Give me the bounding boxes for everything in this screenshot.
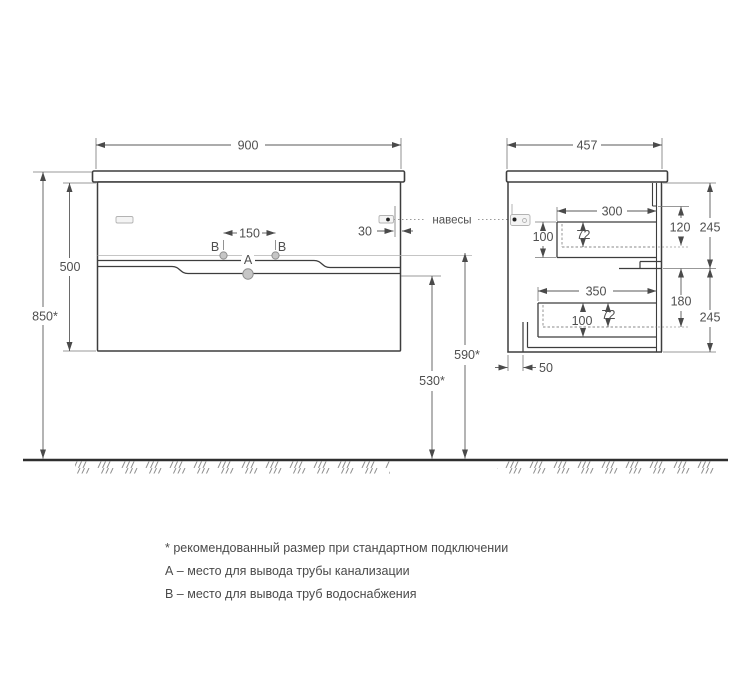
ground [23,460,728,474]
dim-530-label: 530* [419,374,445,388]
vanity-drawing: B B A 150 30 900 850* [0,0,750,500]
dim-100-bottom-label: 100 [572,314,593,328]
ground-hatch-left [75,462,390,474]
dim-72-bottom-label: 72 [602,308,616,322]
top-drawer-outline [557,222,657,258]
side-extension-lines [658,183,716,352]
dim-180-label: 180 [671,295,692,309]
label-a: A [244,253,253,267]
dim-150-label: 150 [239,227,260,241]
dim-100-top-label: 100 [533,230,554,244]
dim-50-label: 50 [539,361,553,375]
point-a [243,269,253,279]
dim-300-label: 300 [602,205,623,219]
bottom-drawer-dashed [543,305,657,327]
dim-72-top-label: 72 [577,228,591,242]
dim-590-label: 590* [454,348,480,362]
side-countertop [507,171,668,182]
dim-350-label: 350 [586,285,607,299]
front-countertop [93,171,405,182]
legend-note-a: А – место для вывода трубы канализации [165,560,508,583]
legend-note-b: В – место для вывода труб водоснабжения [165,583,508,606]
label-b-right: B [278,240,286,254]
dim-457-label: 457 [577,139,598,153]
legend-note-asterisk: * рекомендованный размер при стандартном… [165,537,508,560]
point-b-left [220,252,227,259]
bottom-drawer-outline [538,303,657,337]
hanger-bracket-side [511,204,531,226]
hangers-callout-label: навесы [432,215,471,227]
dim-900-label: 900 [238,139,259,153]
technical-drawing-page: B B A 150 30 900 850* [0,0,750,682]
dim-245-bottom-label: 245 [700,311,721,325]
front-view: B B A 150 30 900 850* [32,138,509,459]
hanger-dot-front [386,218,390,222]
dim-850-label: 850* [32,310,58,324]
dim-120-label: 120 [670,221,691,235]
side-view: 457 300 100 72 350 [495,138,720,375]
dim-500-label: 500 [60,260,81,274]
hangers-callout: навесы [394,215,509,227]
ground-hatch-right [497,462,716,474]
side-top-rail [653,183,657,206]
hanger-icon-left [116,217,133,224]
side-mid-rail [619,262,662,269]
label-b-left: B [211,240,219,254]
dim-530 [401,276,441,459]
dim-50 [495,355,536,371]
dim-30-label: 30 [358,225,372,239]
legend: * рекомендованный размер при стандартном… [165,537,508,606]
dim-245-top-label: 245 [700,221,721,235]
